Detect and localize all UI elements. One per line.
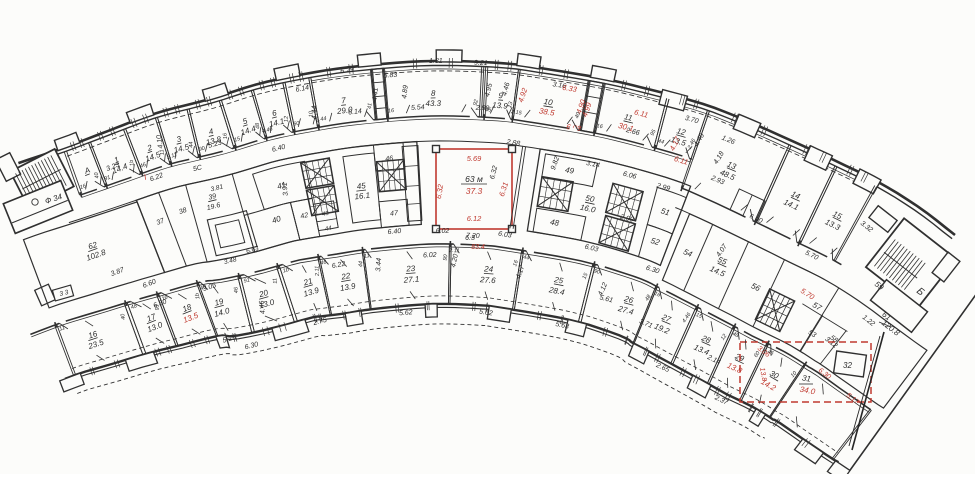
svg-text:24: 24 (483, 264, 494, 274)
svg-text:3.44: 3.44 (375, 258, 383, 272)
svg-text:5.62: 5.62 (399, 309, 413, 317)
svg-text:27.6: 27.6 (479, 275, 497, 285)
svg-text:91: 91 (154, 304, 161, 311)
svg-text:27.1: 27.1 (402, 275, 419, 285)
svg-text:11: 11 (272, 278, 279, 284)
svg-text:83.4: 83.4 (471, 244, 485, 251)
svg-text:16.1: 16.1 (354, 191, 371, 202)
svg-text:13.9: 13.9 (492, 101, 509, 111)
svg-text:45: 45 (356, 181, 366, 191)
svg-text:6.02: 6.02 (423, 252, 437, 259)
svg-text:41: 41 (367, 103, 373, 110)
svg-text:32: 32 (843, 361, 852, 370)
svg-text:44: 44 (523, 255, 530, 262)
svg-text:4.41: 4.41 (372, 87, 380, 101)
svg-text:10: 10 (308, 110, 314, 117)
svg-text:1.81: 1.81 (429, 58, 443, 65)
svg-text:5.83: 5.83 (383, 72, 397, 80)
svg-text:37.3: 37.3 (466, 186, 483, 196)
svg-text:6.02: 6.02 (436, 228, 450, 235)
svg-text:3.91: 3.91 (282, 182, 290, 196)
svg-text:11: 11 (364, 253, 370, 260)
svg-text:44: 44 (188, 141, 194, 148)
svg-text:4.46: 4.46 (259, 300, 267, 314)
svg-text:1b: 1b (129, 159, 136, 166)
svg-text:6.40: 6.40 (387, 228, 401, 236)
svg-text:23: 23 (405, 264, 416, 274)
svg-text:44: 44 (358, 261, 364, 267)
svg-text:5.69: 5.69 (467, 154, 482, 163)
svg-text:9.21: 9.21 (474, 60, 488, 68)
svg-text:4.89: 4.89 (401, 85, 409, 99)
svg-text:31: 31 (801, 373, 811, 383)
svg-text:46: 46 (385, 155, 393, 163)
svg-text:8: 8 (431, 89, 436, 98)
svg-text:6.12: 6.12 (467, 214, 482, 223)
svg-text:63 м: 63 м (465, 174, 483, 184)
svg-text:1b: 1b (195, 293, 202, 300)
svg-text:2.11: 2.11 (314, 266, 320, 278)
svg-text:2.11: 2.11 (448, 248, 459, 254)
svg-text:5.54: 5.54 (411, 104, 425, 112)
svg-text:7.20: 7.20 (466, 232, 480, 240)
svg-text:43.3: 43.3 (425, 99, 441, 108)
